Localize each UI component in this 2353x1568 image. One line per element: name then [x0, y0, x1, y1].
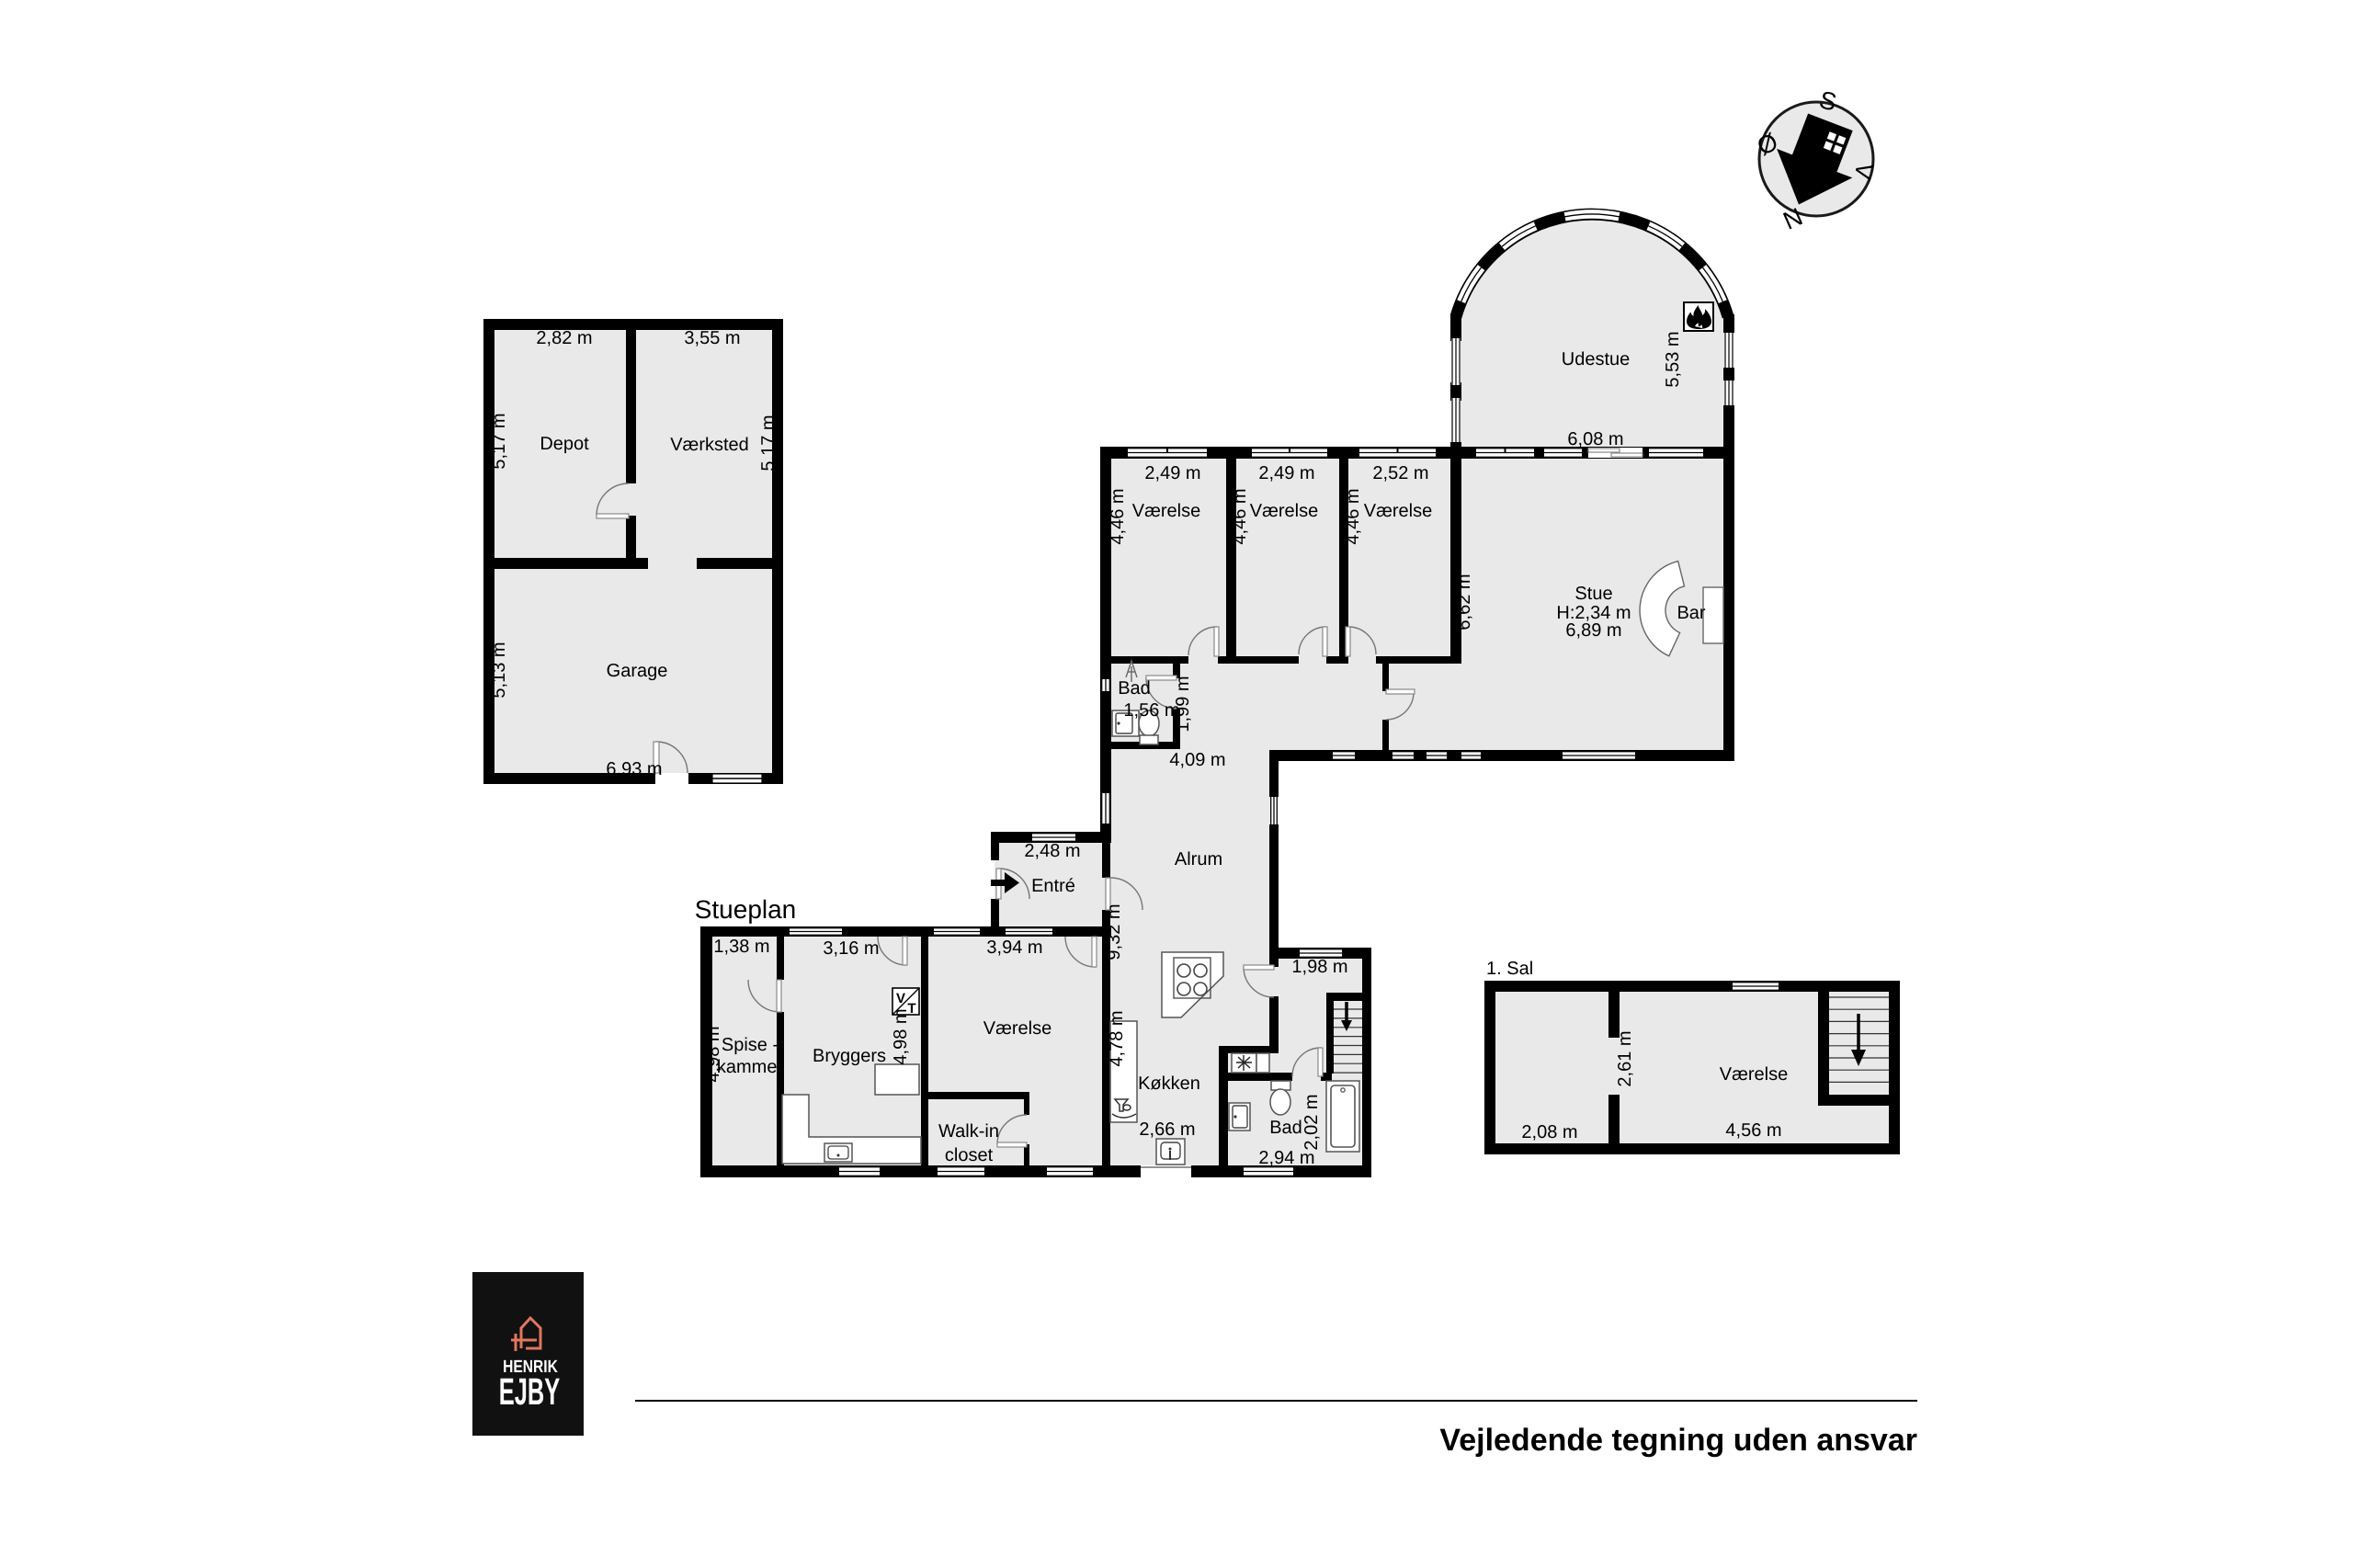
svg-text:Bar: Bar	[1677, 603, 1705, 623]
svg-text:Garage: Garage	[607, 661, 668, 681]
svg-text:closet: closet	[945, 1145, 994, 1165]
svg-text:4,46 m: 4,46 m	[1343, 488, 1363, 544]
svg-text:6,62 m: 6,62 m	[1454, 574, 1474, 630]
svg-text:4,98 m: 4,98 m	[891, 1008, 911, 1064]
svg-text:5,17 m: 5,17 m	[489, 413, 509, 469]
svg-text:Spise -: Spise -	[722, 1035, 779, 1055]
svg-text:Entré: Entré	[1031, 876, 1075, 896]
svg-text:2,08 m: 2,08 m	[1521, 1122, 1577, 1142]
svg-text:2,52 m: 2,52 m	[1372, 463, 1428, 483]
svg-text:Værelse: Værelse	[1720, 1064, 1788, 1085]
svg-text:Vejledende tegning uden ansvar: Vejledende tegning uden ansvar	[1439, 1423, 1917, 1458]
svg-text:Værelse: Værelse	[1132, 501, 1200, 521]
svg-text:5,13 m: 5,13 m	[489, 642, 509, 698]
svg-text:Bryggers: Bryggers	[813, 1046, 886, 1066]
svg-text:2,02 m: 2,02 m	[1302, 1094, 1322, 1150]
svg-text:Alrum: Alrum	[1175, 849, 1222, 869]
svg-text:5,17 m: 5,17 m	[758, 415, 779, 471]
svg-text:EJBY: EJBY	[499, 1370, 560, 1413]
svg-text:2,49 m: 2,49 m	[1144, 463, 1200, 483]
svg-text:4,78 m: 4,78 m	[1107, 1010, 1127, 1066]
svg-text:4,46 m: 4,46 m	[1108, 488, 1128, 544]
svg-text:3,94 m: 3,94 m	[986, 937, 1042, 958]
svg-text:Køkken: Køkken	[1138, 1074, 1200, 1094]
svg-text:Værksted: Værksted	[670, 435, 749, 455]
svg-text:9,32 m: 9,32 m	[1104, 903, 1124, 960]
svg-text:6,93 m: 6,93 m	[606, 759, 662, 779]
svg-text:Udestue: Udestue	[1562, 349, 1631, 369]
svg-text:2,82 m: 2,82 m	[536, 328, 592, 348]
svg-text:1,56 m: 1,56 m	[1123, 700, 1179, 721]
svg-text:1,99 m: 1,99 m	[1173, 676, 1193, 732]
svg-text:6,89 m: 6,89 m	[1565, 620, 1621, 641]
svg-text:5,53 m: 5,53 m	[1663, 331, 1683, 387]
svg-text:1,38 m: 1,38 m	[713, 937, 769, 957]
svg-text:1,98 m: 1,98 m	[1291, 957, 1347, 977]
svg-text:6,08 m: 6,08 m	[1567, 429, 1623, 449]
svg-text:Værelse: Værelse	[1364, 501, 1432, 521]
svg-text:3,55 m: 3,55 m	[684, 328, 740, 348]
svg-text:Værelse: Værelse	[1250, 501, 1318, 521]
svg-text:3,16 m: 3,16 m	[823, 938, 879, 959]
svg-text:Depot: Depot	[540, 434, 589, 454]
svg-text:Stue: Stue	[1574, 584, 1612, 604]
svg-text:Bad: Bad	[1269, 1118, 1302, 1138]
svg-text:1. Sal: 1. Sal	[1486, 959, 1533, 979]
svg-text:kammer: kammer	[717, 1057, 784, 1077]
svg-text:4,09 m: 4,09 m	[1169, 750, 1225, 770]
svg-text:Stueplan: Stueplan	[695, 895, 797, 924]
svg-text:V: V	[896, 991, 905, 1006]
svg-text:2,66 m: 2,66 m	[1139, 1119, 1195, 1140]
svg-text:2,48 m: 2,48 m	[1024, 841, 1080, 861]
svg-text:2,61 m: 2,61 m	[1615, 1030, 1635, 1086]
svg-text:2,94 m: 2,94 m	[1258, 1148, 1314, 1168]
svg-text:4,56 m: 4,56 m	[1725, 1120, 1781, 1141]
svg-text:2,49 m: 2,49 m	[1258, 463, 1314, 483]
svg-text:Værelse: Værelse	[983, 1018, 1051, 1039]
svg-text:Walk-in: Walk-in	[938, 1121, 999, 1142]
svg-text:Bad: Bad	[1118, 678, 1151, 699]
svg-text:4,46 m: 4,46 m	[1230, 488, 1250, 544]
